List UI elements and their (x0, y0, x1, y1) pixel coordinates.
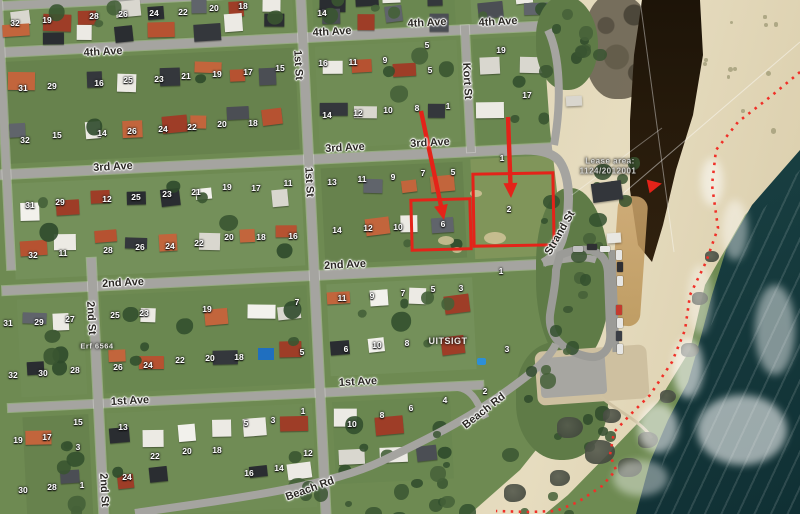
plot-number-label: 24 (149, 8, 158, 18)
plot-number-label: 11 (358, 174, 367, 184)
plot-number-label: 8 (415, 103, 420, 113)
plot-number-label: 19 (496, 45, 505, 55)
street-label-4th-ave: 4th Ave (312, 25, 351, 39)
plot-number-label: 8 (405, 338, 410, 348)
plot-number-label: 13 (118, 422, 127, 432)
plot-number-label: 20 (209, 3, 218, 13)
plot-number-label: 24 (158, 124, 167, 134)
plot-number-label: 7 (421, 168, 426, 178)
annotation-rect-plot-2 (471, 171, 555, 247)
plot-number-label: 32 (28, 250, 37, 260)
plot-number-label: 25 (123, 75, 132, 85)
plot-number-label: 20 (182, 446, 191, 456)
plot-number-label: 5 (428, 65, 433, 75)
plot-number-label: 4 (443, 395, 448, 405)
plot-number-label: 16 (318, 58, 327, 68)
street-label-2nd-st: 2nd St (84, 301, 98, 335)
street-label-2nd-st: 2nd St (97, 473, 111, 507)
plot-number-label: 22 (175, 355, 184, 365)
plot-number-label: 29 (55, 197, 64, 207)
plot-number-label: 17 (42, 432, 51, 442)
plot-number-label: 13 (327, 177, 336, 187)
plot-number-label: 20 (224, 232, 233, 242)
poi-label-1124-2012001: 1124/2012001 (580, 167, 637, 176)
plot-number-label: 11 (59, 248, 68, 258)
plot-number-label: 29 (34, 317, 43, 327)
plot-number-label: 1 (500, 153, 505, 163)
plot-number-label: 7 (295, 297, 300, 307)
plot-number-label: 16 (244, 468, 253, 478)
street-label-2nd-ave: 2nd Ave (102, 276, 145, 290)
plot-number-label: 14 (332, 225, 341, 235)
plot-number-label: 16 (288, 231, 297, 241)
plot-number-label: 31 (18, 83, 27, 93)
plot-number-label: 5 (451, 167, 456, 177)
plot-number-label: 5 (431, 284, 436, 294)
plot-number-label: 15 (52, 130, 61, 140)
street-label-2nd-ave: 2nd Ave (324, 258, 367, 272)
plot-number-label: 23 (162, 189, 171, 199)
plot-number-label: 14 (322, 110, 331, 120)
plot-number-label: 29 (47, 81, 56, 91)
plot-number-label: 3 (271, 415, 276, 425)
plot-number-label: 25 (110, 310, 119, 320)
plot-number-label: 24 (122, 472, 131, 482)
street-label-4th-ave: 4th Ave (83, 45, 122, 59)
plot-number-label: 17 (522, 90, 531, 100)
plot-number-label: 17 (243, 67, 252, 77)
plot-number-label: 22 (194, 238, 203, 248)
plot-number-label: 25 (131, 192, 140, 202)
plot-number-label: 3 (505, 344, 510, 354)
plot-number-label: 12 (303, 448, 312, 458)
plot-number-label: 26 (118, 9, 127, 19)
plot-number-label: 2 (483, 386, 488, 396)
plot-number-label: 2 (507, 204, 512, 214)
plot-number-label: 14 (97, 128, 106, 138)
plot-number-label: 19 (42, 15, 51, 25)
plot-number-label: 19 (222, 182, 231, 192)
plot-number-label: 22 (150, 451, 159, 461)
plot-number-label: 1 (499, 266, 504, 276)
plot-number-label: 12 (353, 108, 362, 118)
plot-number-label: 9 (383, 55, 388, 65)
plot-number-label: 32 (20, 135, 29, 145)
plot-number-label: 26 (127, 126, 136, 136)
plot-number-label: 8 (380, 410, 385, 420)
plot-number-label: 12 (102, 194, 111, 204)
plot-number-label: 9 (370, 291, 375, 301)
plot-number-label: 1 (446, 101, 451, 111)
plot-number-label: 31 (25, 200, 34, 210)
street-label-kort-st: Kort St (460, 62, 474, 99)
plot-number-label: 19 (13, 435, 22, 445)
plot-number-label: 10 (372, 340, 381, 350)
plot-number-label: 6 (409, 403, 414, 413)
plot-number-label: 18 (234, 352, 243, 362)
plot-number-label: 20 (205, 353, 214, 363)
plot-number-label: 20 (217, 119, 226, 129)
plot-number-label: 10 (347, 419, 356, 429)
plot-number-label: 14 (274, 463, 283, 473)
street-label-1st-ave: 1st Ave (339, 375, 378, 389)
street-label-4th-ave: 4th Ave (478, 15, 517, 29)
plot-number-label: 12 (363, 223, 372, 233)
boundary-dotted-line (496, 72, 800, 512)
plot-number-label: 21 (181, 71, 190, 81)
street-label-4th-ave: 4th Ave (407, 16, 446, 30)
satellite-map[interactable]: 4th Ave4th Ave4th Ave4th Ave3rd Ave3rd A… (0, 0, 800, 514)
plot-number-label: 10 (393, 222, 402, 232)
plot-number-label: 32 (8, 370, 17, 380)
plot-number-label: 17 (251, 183, 260, 193)
plot-number-label: 18 (212, 445, 221, 455)
plot-number-label: 28 (47, 482, 56, 492)
plot-number-label: 11 (349, 57, 358, 67)
plot-number-label: 19 (202, 304, 211, 314)
plot-number-label: 23 (139, 308, 148, 318)
plot-number-label: 24 (165, 241, 174, 251)
plot-number-label: 10 (383, 105, 392, 115)
poi-label-uitsigt: UITSIGT (429, 336, 468, 346)
plot-number-label: 14 (317, 8, 326, 18)
plot-number-label: 9 (391, 172, 396, 182)
street-label-1st-ave: 1st Ave (111, 394, 150, 408)
street-label-1st-st: 1st St (291, 50, 305, 81)
plot-number-label: 5 (425, 40, 430, 50)
plot-number-label: 18 (248, 118, 257, 128)
plot-number-label: 23 (154, 74, 163, 84)
arrow-to-plot-6-shaft (421, 111, 441, 207)
red-triangle-marker (647, 177, 664, 194)
poi-label-lease-area-: Lease area: (585, 157, 635, 166)
plot-number-label: 16 (94, 78, 103, 88)
plot-number-label: 28 (70, 365, 79, 375)
plot-number-label: 6 (344, 344, 349, 354)
plot-number-label: 28 (103, 245, 112, 255)
plot-number-label: 3 (459, 283, 464, 293)
plot-number-label: 7 (401, 288, 406, 298)
plot-number-label: 31 (3, 318, 12, 328)
plot-number-label: 30 (18, 485, 27, 495)
street-label-1st-st: 1st St (302, 167, 316, 198)
plot-number-label: 19 (212, 69, 221, 79)
plot-number-label: 30 (38, 368, 47, 378)
plot-number-label: 26 (113, 362, 122, 372)
plot-number-label: 22 (187, 122, 196, 132)
plot-number-label: 27 (65, 314, 74, 324)
poi-label-erf-6564: Erf 6564 (80, 342, 113, 351)
plot-number-label: 1 (80, 480, 85, 490)
plot-number-label: 22 (178, 7, 187, 17)
plot-number-label: 18 (256, 232, 265, 242)
plot-number-label: 5 (300, 347, 305, 357)
plot-number-label: 11 (338, 293, 347, 303)
plot-number-label: 1 (301, 406, 306, 416)
plot-number-label: 18 (238, 1, 247, 11)
street-label-3rd-ave: 3rd Ave (325, 141, 365, 155)
plot-number-label: 11 (284, 178, 293, 188)
plot-number-label: 15 (73, 417, 82, 427)
plot-number-label: 5 (244, 418, 249, 428)
plot-number-label: 21 (191, 187, 200, 197)
plot-number-label: 28 (89, 11, 98, 21)
plot-number-label: 15 (275, 63, 284, 73)
plot-number-label: 3 (76, 442, 81, 452)
street-label-3rd-ave: 3rd Ave (93, 160, 133, 174)
street-label-3rd-ave: 3rd Ave (410, 136, 450, 150)
plot-number-label: 26 (135, 242, 144, 252)
plot-number-label: 24 (143, 360, 152, 370)
plot-number-label: 6 (441, 219, 446, 229)
annotation-overlay (0, 0, 800, 514)
plot-number-label: 32 (10, 18, 19, 28)
